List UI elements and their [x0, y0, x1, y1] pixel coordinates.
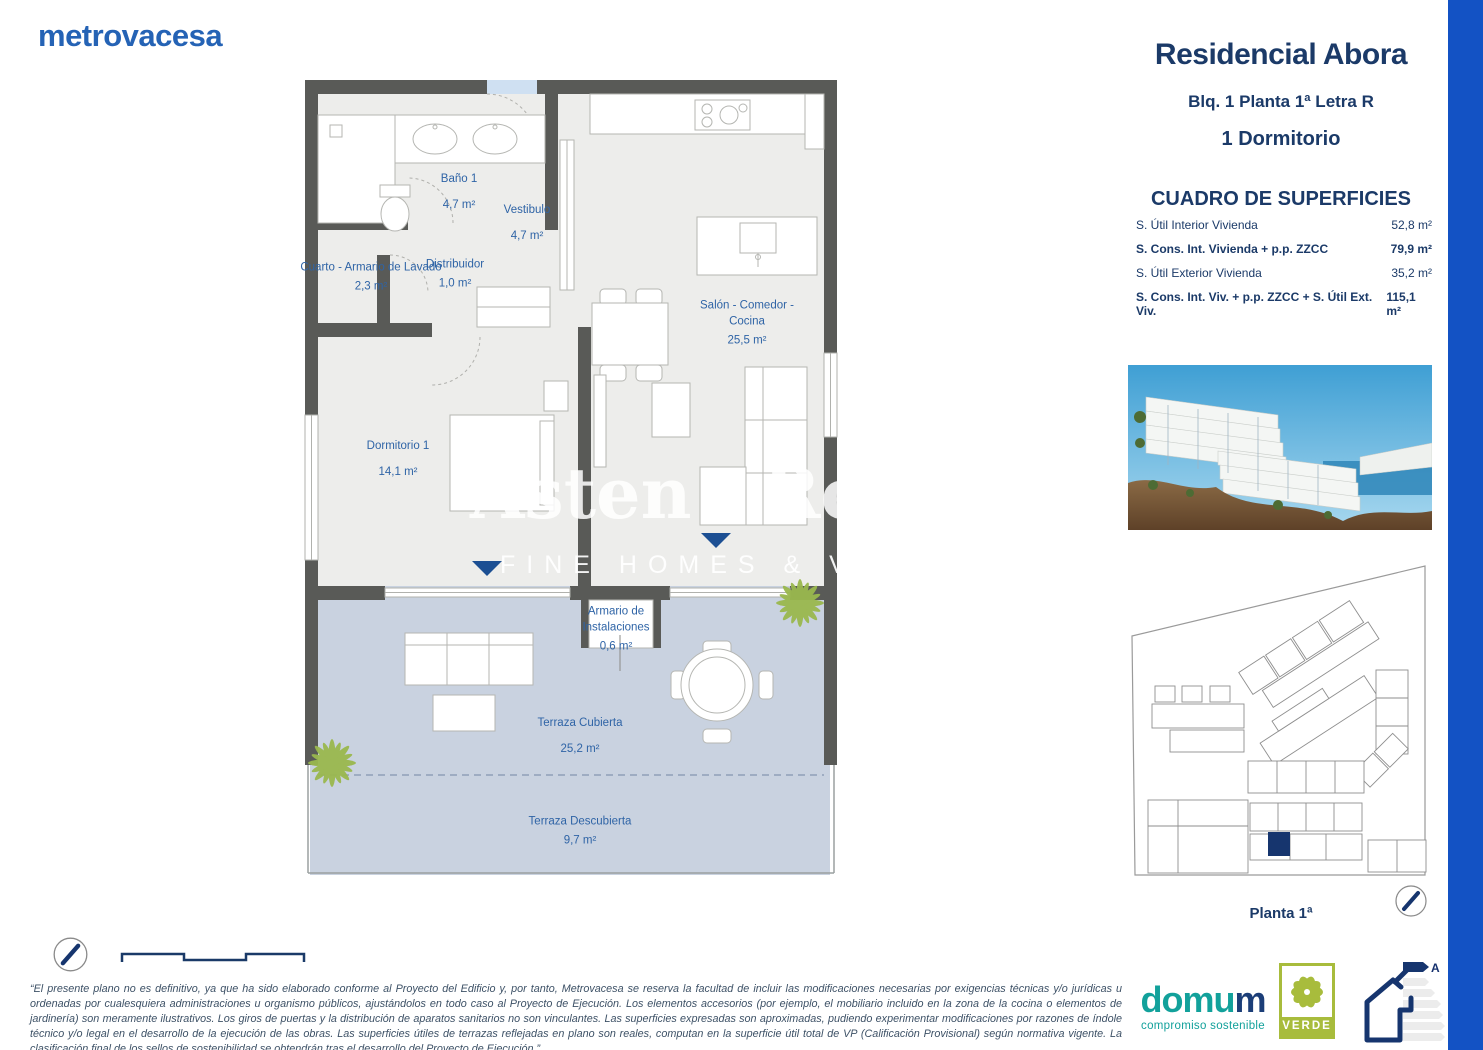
energy-rating-letter: A	[1431, 961, 1440, 975]
domum-logo: domum compromiso sostenible	[1138, 982, 1268, 1032]
room-label-distribuidor: Distribuidor 1,0 m²	[400, 256, 510, 291]
palm-plant-right	[776, 579, 824, 627]
building-photo	[1128, 365, 1432, 530]
room-label-bano1: Baño 1 4,7 m²	[441, 171, 477, 213]
table-row: S. Útil Interior Vivienda 52,8 m²	[1136, 218, 1432, 232]
room-label-terraza-descubierta: Terraza Descubierta 9,7 m²	[528, 813, 633, 848]
page-title: Residencial Abora	[1130, 38, 1432, 72]
domum-tagline: compromiso sostenible	[1138, 1020, 1268, 1032]
surface-label: S. Útil Interior Vivienda	[1136, 218, 1258, 232]
palm-plant-left	[308, 739, 356, 787]
surface-label: S. Cons. Int. Vivienda + p.p. ZZCC	[1136, 242, 1328, 256]
surface-value: 52,8 m²	[1391, 218, 1432, 232]
bedroom-count: 1 Dormitorio	[1130, 128, 1432, 151]
surfaces-table-title: CUADRO DE SUPERFICIES	[1130, 188, 1432, 211]
verde-flower-icon	[1282, 966, 1332, 1017]
room-label-dormitorio1: Dormitorio 1 14,1 m²	[367, 438, 430, 480]
entrance-door-strip	[487, 80, 537, 94]
unit-reference: Blq. 1 Planta 1ª Letra R	[1130, 92, 1432, 112]
surface-value: 79,9 m²	[1391, 242, 1432, 256]
surface-value: 35,2 m²	[1391, 266, 1432, 280]
metrovacesa-logo: metrovacesa	[38, 18, 222, 54]
verde-label: VERDE	[1282, 1017, 1332, 1036]
compass-icon	[52, 936, 89, 973]
room-label-salon: Salón - Comedor - Cocina 25,5 m²	[691, 297, 803, 348]
room-label-armario-instalaciones: Armario de Instalaciones 0,6 m²	[564, 603, 669, 654]
right-accent-bar	[1448, 0, 1483, 1050]
table-row: S. Cons. Int. Viv. + p.p. ZZCC + S. Útil…	[1136, 290, 1432, 318]
siteplan-caption: Planta 1ª	[1130, 905, 1432, 922]
surface-value: 115,1 m²	[1386, 290, 1432, 318]
room-label-vestibulo: Vestibulo 4,7 m²	[504, 202, 551, 244]
scale-bar	[118, 946, 308, 968]
room-label-terraza-cubierta: Terraza Cubierta 25,2 m²	[537, 715, 622, 757]
compass-icon	[1394, 884, 1428, 918]
surface-label: S. Cons. Int. Viv. + p.p. ZZCC + S. Útil…	[1136, 290, 1386, 318]
surfaces-table: S. Útil Interior Vivienda 52,8 m² S. Con…	[1136, 218, 1432, 328]
table-row: S. Útil Exterior Vivienda 35,2 m²	[1136, 266, 1432, 280]
domum-wordmark: domum	[1138, 982, 1268, 1018]
table-row: S. Cons. Int. Vivienda + p.p. ZZCC 79,9 …	[1136, 242, 1432, 256]
surface-label: S. Útil Exterior Vivienda	[1136, 266, 1262, 280]
highlighted-unit	[1268, 832, 1290, 856]
siteplan-map	[1130, 558, 1435, 893]
legal-disclaimer: “El presente plano no es definitivo, ya …	[30, 982, 1122, 1050]
page: metrovacesa	[0, 0, 1483, 1050]
verde-certificate-logo: VERDE	[1279, 963, 1335, 1039]
